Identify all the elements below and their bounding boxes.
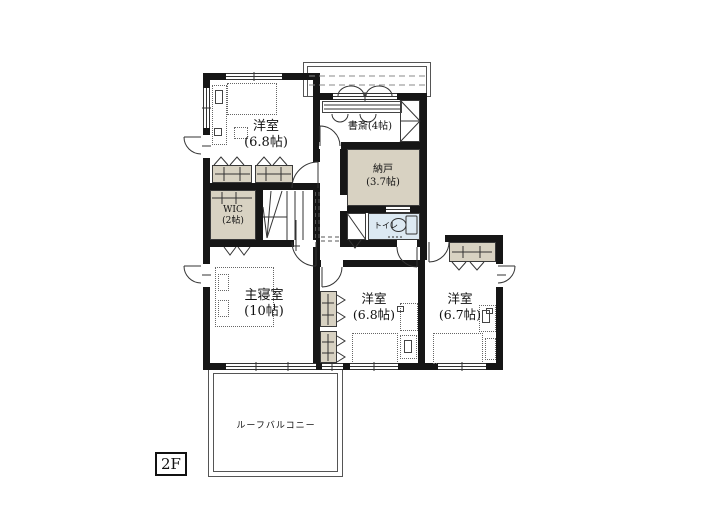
bed — [433, 333, 483, 364]
chair — [404, 340, 412, 353]
window — [438, 363, 486, 370]
casement-window-opening — [203, 135, 210, 158]
room-label-study: 書斎(4帖) — [330, 121, 410, 134]
wall — [420, 93, 427, 247]
nw-closet-1 — [212, 165, 252, 183]
room-label-storage: 納戸 (3.7帖) — [350, 164, 416, 189]
door-arc-right-room — [429, 242, 449, 262]
room-name: 主寝室 — [244, 288, 283, 303]
room-size: (6.8帖) — [353, 307, 395, 322]
wall — [420, 247, 427, 260]
master-door-opening — [294, 240, 316, 247]
window — [226, 73, 282, 80]
wall — [445, 235, 503, 242]
bed — [227, 83, 277, 115]
room-label-nw: 洋室 (6.8帖) — [210, 119, 322, 152]
shelf-item — [215, 90, 223, 104]
wall — [340, 206, 427, 213]
window — [350, 363, 398, 370]
casement-window-opening — [496, 264, 503, 287]
room-name: 洋室 — [361, 291, 386, 306]
floor-plan-canvas: 洋室 (6.8帖) 書斎(4帖) 納戸 (3.7帖) WIC (2帖) トイレ … — [0, 0, 709, 531]
right-room-closet — [449, 242, 496, 262]
study-door-opening — [319, 142, 341, 149]
casement-window-opening — [203, 264, 210, 287]
room-size: (6.7帖) — [439, 307, 481, 322]
window — [322, 363, 343, 370]
room-name: ルーフバルコニー — [236, 421, 315, 431]
room-name: WIC — [223, 205, 243, 215]
mid-room-closet-2 — [320, 331, 337, 363]
room-label-right: 洋室 (6.7帖) — [412, 291, 508, 322]
door-arc-mid-room — [322, 267, 342, 287]
floor-label-box: 2F — [155, 452, 187, 476]
room-name: 書斎(4帖) — [348, 121, 392, 132]
room-size: (10帖) — [244, 304, 284, 319]
window — [386, 206, 410, 213]
room-label-roof-balcony: ルーフバルコニー — [214, 421, 338, 432]
study-desk — [322, 101, 402, 113]
storage-door-opening — [340, 195, 347, 211]
room-label-toilet: トイレ — [369, 221, 403, 231]
floor-label: 2F — [161, 455, 181, 473]
room-size: (3.7帖) — [366, 177, 400, 188]
room-size: (2帖) — [222, 216, 244, 226]
window — [203, 88, 210, 128]
room-size: (6.8帖) — [244, 135, 288, 150]
room-name: 納戸 — [373, 164, 393, 175]
wall — [203, 183, 320, 190]
window — [333, 93, 397, 100]
room-label-wic: WIC (2帖) — [208, 205, 258, 228]
nightstand — [485, 338, 496, 360]
room-name: 洋室 — [253, 119, 279, 134]
room-name: トイレ — [374, 221, 398, 230]
room-label-mid: 洋室 (6.8帖) — [326, 291, 422, 322]
room-name: 洋室 — [447, 291, 472, 306]
room-label-master: 主寝室 (10帖) — [208, 288, 320, 321]
wall — [313, 186, 320, 240]
bed — [352, 333, 398, 364]
window — [226, 363, 316, 370]
mid-room-door-opening — [321, 260, 343, 267]
nw-closet-2 — [255, 165, 293, 183]
toilet-door-opening — [397, 240, 417, 247]
hall-closet — [347, 213, 366, 240]
